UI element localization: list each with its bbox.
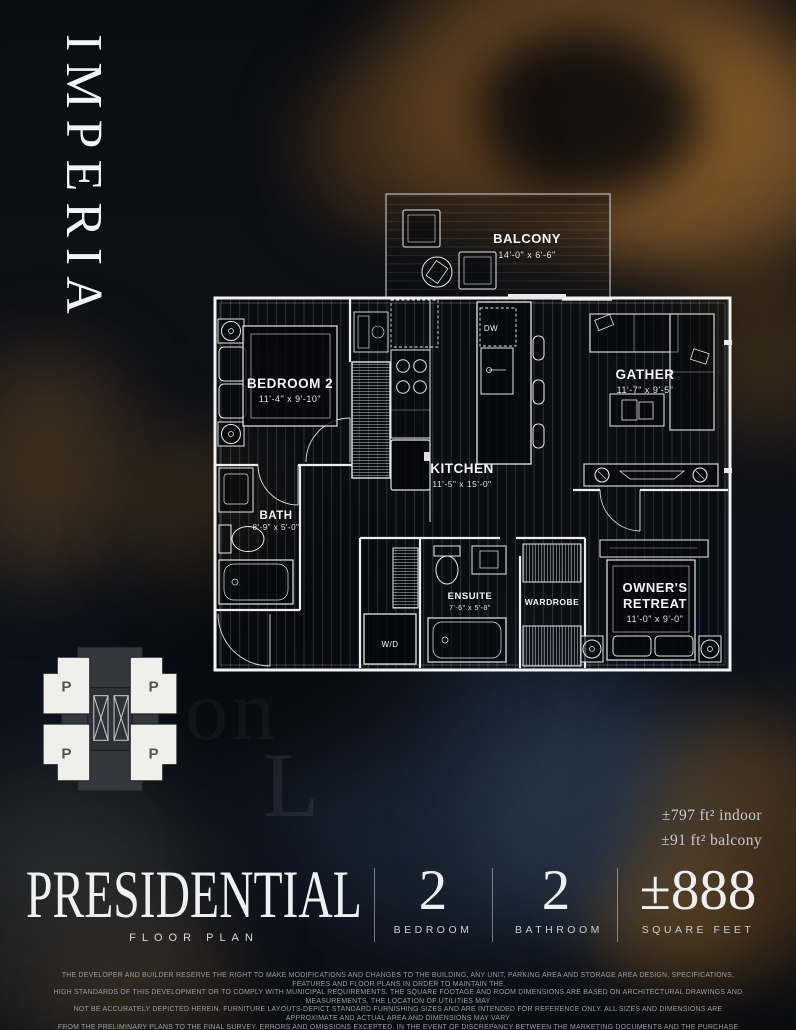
washer-dryer-label: W/D [381,640,398,649]
disclaimer-line: FROM THE PRELIMINARY PLANS TO THE FINAL … [50,1024,746,1030]
ensuite-dims: 7'-6" x 5'-8" [449,605,491,612]
stool [533,336,544,360]
pillow [655,636,693,656]
stool [533,380,544,404]
balcony-chair [403,210,440,247]
keyplan-unit-label: P [148,679,158,696]
kitchen-dims: 11'-5" x 15'-0" [432,479,491,489]
divider [374,868,375,942]
bedroom2-label: BEDROOM 2 [247,376,333,391]
bathroom-label: BATHROOM [515,924,597,936]
sliding-door [508,294,566,299]
divider [492,868,493,942]
disclaimer-line: THE DEVELOPER AND BUILDER RESERVE THE RI… [50,972,746,989]
pillow [613,636,651,656]
keyplan-unit-label: P [61,679,71,696]
bath-label: BATH [259,510,292,522]
bedroom-label: BEDROOM [393,924,473,936]
marble-blob [470,30,700,200]
keyplan-unit-label: P [61,746,71,763]
page-subtitle: FLOOR PLAN [26,932,362,944]
bathtub [219,560,293,604]
owners-label-line2: RETREAT [623,596,687,611]
building-keyplan: P P P P [33,645,187,793]
kitchen-label: KITCHEN [430,461,494,476]
gather-label: GATHER [616,367,675,382]
desk [354,312,388,352]
coffee-table [610,394,664,426]
washer-dryer [364,614,416,664]
linen-closet [393,548,418,608]
balcony-area: BALCONY 14'-0" x 6'-6" [386,194,610,299]
bedroom2-dims: 11'-4" x 9'-10" [259,394,321,404]
balcony-area-note: ±91 ft² balcony [661,828,762,853]
disclaimer-line: NOT BE ACCURATELY DEPICTED HEREIN. FURNI… [50,1006,746,1023]
square-feet-count: ±888 [627,862,769,920]
stool [533,424,544,448]
area-summary: ±797 ft² indoor ±91 ft² balcony [661,803,762,853]
dresser [600,540,708,557]
watermark: on L [185,660,319,838]
stat-square-feet: ±888 SQUARE FEET [627,862,769,936]
dishwasher-label: DW [484,324,498,333]
ensuite-sink [472,546,506,574]
wardrobe-label: WARDROBE [525,597,580,607]
bathroom-count: 2 [515,862,597,920]
bedroom-count: 2 [393,862,473,920]
watermark-text: L [263,732,319,838]
legal-disclaimer: THE DEVELOPER AND BUILDER RESERVE THE RI… [50,972,746,1030]
vanity-sink [219,468,253,512]
square-feet-label: SQUARE FEET [627,924,769,936]
indoor-area: ±797 ft² indoor [661,803,762,828]
closet [352,362,390,478]
owners-dims: 11'-0" x 9'-0" [627,614,684,624]
plan-title-block: PRESIDENTIAL FLOOR PLAN [26,862,362,944]
fridge [391,440,430,490]
gather-dims: 11'-7" x 9'-5" [617,385,674,395]
keyplan-unit-label: P [148,746,158,763]
balcony-chair [459,252,496,289]
balcony-dims: 14'-0" x 6'-6" [498,250,555,260]
media-console [584,464,718,486]
floorplan-drawing: BALCONY 14'-0" x 6'-6" [190,185,750,685]
page-title: PRESIDENTIAL [26,862,261,926]
bath-dims: 8'-9" x 5'-0" [253,523,300,532]
stove [391,350,430,438]
ensuite-tub [428,618,506,662]
pillow [219,347,246,381]
marketing-sheet: on L IMPERIA [0,0,796,1030]
pillow [219,384,246,418]
owners-label-line1: OWNER'S [622,580,687,595]
disclaimer-line: HIGH STANDARDS OF THIS DEVELOPMENT OR TO… [50,989,746,1006]
balcony-table [422,257,452,287]
stat-bathroom: 2 BATHROOM [515,862,597,936]
ensuite-label: ENSUITE [448,591,493,602]
stat-bedroom: 2 BEDROOM [393,862,473,936]
divider [617,868,618,942]
balcony-label: BALCONY [493,231,561,246]
brand-logo-vertical: IMPERIA [54,34,113,404]
keyplan-core [86,688,135,751]
ensuite-block: W/D ENSUITE 7'-6" x 5'-8" W [364,544,581,666]
